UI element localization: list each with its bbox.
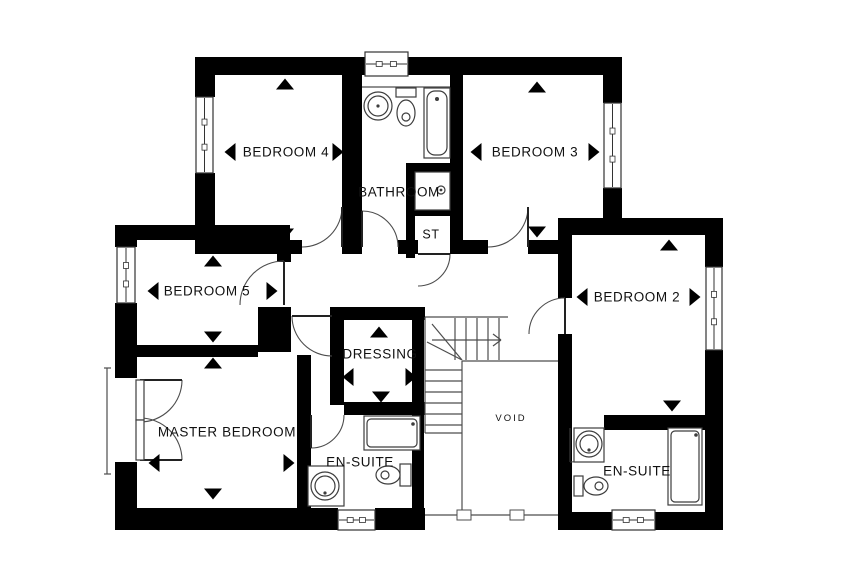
en-suite-master-shower-dot xyxy=(411,422,415,426)
en-suite-master-window-tick xyxy=(359,518,365,523)
wall xyxy=(342,75,362,240)
wall xyxy=(450,75,463,240)
en-suite-master-window-tick xyxy=(347,518,353,523)
bathroom-toilet-tank xyxy=(396,88,416,97)
en-suite-2-sink-tap xyxy=(587,448,590,451)
en-suite-master-window xyxy=(338,510,375,530)
en-suite-2-window xyxy=(612,510,655,530)
en-suite-master-toilet-detail xyxy=(381,471,389,479)
room-label-bedroom-5: BEDROOM 5 xyxy=(164,284,250,299)
wall xyxy=(115,303,137,378)
wall xyxy=(115,345,258,357)
french-door-leaf-b xyxy=(136,420,144,460)
bathroom-window xyxy=(365,52,408,76)
wall xyxy=(705,350,723,530)
wall xyxy=(558,512,612,530)
wall xyxy=(655,512,723,530)
en-suite-master-sink-tap xyxy=(323,491,326,494)
glazing-mullion xyxy=(457,510,471,520)
room-label-bedroom-4: BEDROOM 4 xyxy=(243,145,329,160)
bedroom-5-window-tick xyxy=(124,281,129,287)
wall xyxy=(342,240,362,254)
bedroom-2-window-tick xyxy=(712,319,717,325)
bathroom-sink-tap xyxy=(376,104,379,107)
room-label-storage: ST xyxy=(422,228,439,242)
bedroom-4-window xyxy=(196,97,213,173)
wall xyxy=(375,508,425,530)
wall xyxy=(705,235,723,267)
room-label-master-bedroom: MASTER BEDROOM xyxy=(158,425,296,440)
bedroom-4-window-tick xyxy=(202,144,207,150)
en-suite-2-window-tick xyxy=(637,518,643,523)
wall xyxy=(258,307,291,352)
bedroom-3-window-tick xyxy=(610,128,615,134)
bedroom-3-window-tick xyxy=(610,156,615,162)
wall xyxy=(195,75,215,97)
room-label-void: VOID xyxy=(495,413,526,424)
room-label-bedroom-2: BEDROOM 2 xyxy=(594,290,680,305)
wall xyxy=(406,163,415,258)
wall xyxy=(115,508,338,530)
wall xyxy=(558,235,572,298)
bathroom-shower-head-dot xyxy=(440,189,443,192)
en-suite-master-toilet-tank xyxy=(400,464,411,486)
wall xyxy=(330,320,344,405)
bedroom-5-window xyxy=(117,247,135,303)
room-label-dressing: DRESSING xyxy=(342,347,417,362)
bathroom-window-tick xyxy=(376,62,382,67)
wall xyxy=(330,307,425,320)
wall xyxy=(115,462,137,512)
room-label-bedroom-3: BEDROOM 3 xyxy=(492,145,578,160)
floor-plan-canvas: BEDROOM 4BATHROOMBEDROOM 3STBEDROOM 5BED… xyxy=(0,0,850,567)
wall xyxy=(528,240,558,254)
bedroom-4-window-tick xyxy=(202,119,207,125)
bedroom-5-window-tick xyxy=(124,262,129,268)
bedroom-2-window xyxy=(706,267,722,350)
wall xyxy=(412,307,424,512)
floor-plan-svg: BEDROOM 4BATHROOMBEDROOM 3STBEDROOM 5BED… xyxy=(0,0,850,567)
wall xyxy=(277,240,291,262)
bedroom-2-window-tick xyxy=(712,291,717,297)
bathroom-toilet-detail xyxy=(402,113,410,121)
room-label-en-suite-2: EN-SUITE xyxy=(603,464,671,479)
bathtub-drain xyxy=(435,97,439,101)
room-label-bathroom: BATHROOM xyxy=(358,185,440,200)
en-suite-master-shower-inner xyxy=(367,419,417,447)
wall xyxy=(603,75,622,103)
bathroom-window-tick xyxy=(390,62,396,67)
wall xyxy=(115,225,290,240)
wall xyxy=(115,240,137,247)
room-label-en-suite-master: EN-SUITE xyxy=(326,455,394,470)
en-suite-2-window-tick xyxy=(623,518,629,523)
en-suite-2-toilet-tank xyxy=(574,476,583,496)
en-suite-2-shower-dot xyxy=(694,433,698,437)
wall xyxy=(558,218,723,235)
wall xyxy=(450,240,488,254)
bedroom-3-window xyxy=(604,103,621,188)
en-suite-2-shower-inner xyxy=(671,431,699,502)
en-suite-2-toilet-detail xyxy=(595,482,603,490)
wall xyxy=(558,415,568,430)
glazing-mullion xyxy=(510,510,524,520)
french-door-leaf-a xyxy=(136,380,144,420)
